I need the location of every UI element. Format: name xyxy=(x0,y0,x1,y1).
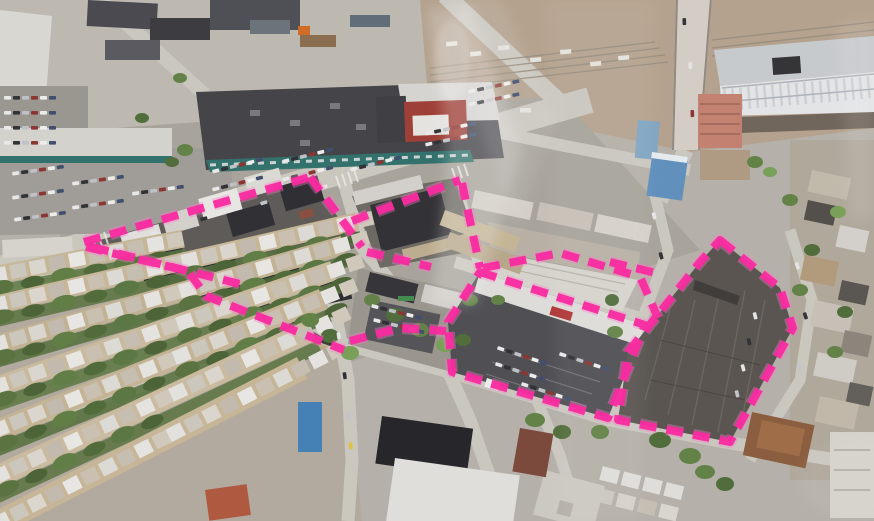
photo-tone xyxy=(0,0,874,521)
aerial-photo xyxy=(0,0,874,521)
